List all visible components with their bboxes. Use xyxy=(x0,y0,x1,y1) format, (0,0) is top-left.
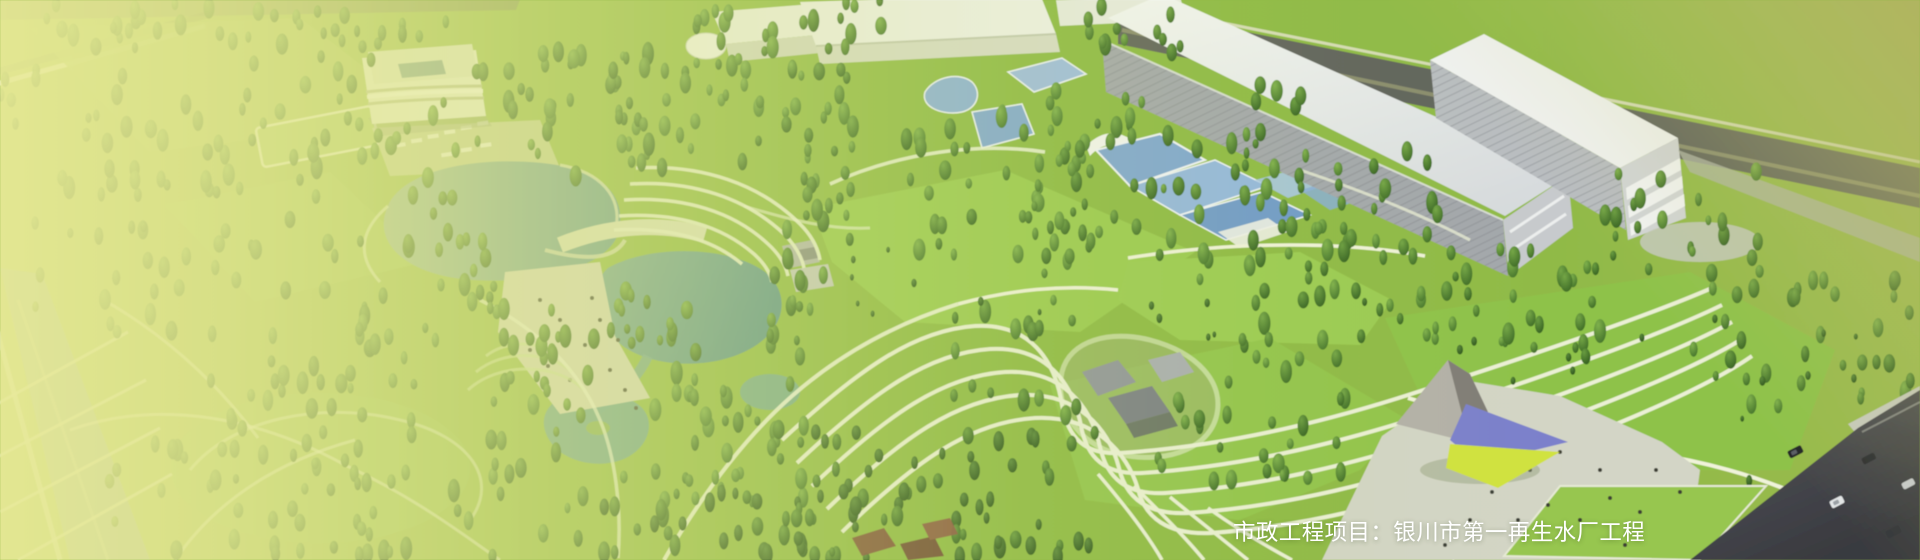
top-right-color-wash xyxy=(0,0,1920,560)
hero-banner: 市政工程项目：银川市第一再生水厂工程 xyxy=(0,0,1920,560)
aerial-render-image xyxy=(0,0,1920,560)
project-caption: 市政工程项目：银川市第一再生水厂工程 xyxy=(1233,519,1645,547)
